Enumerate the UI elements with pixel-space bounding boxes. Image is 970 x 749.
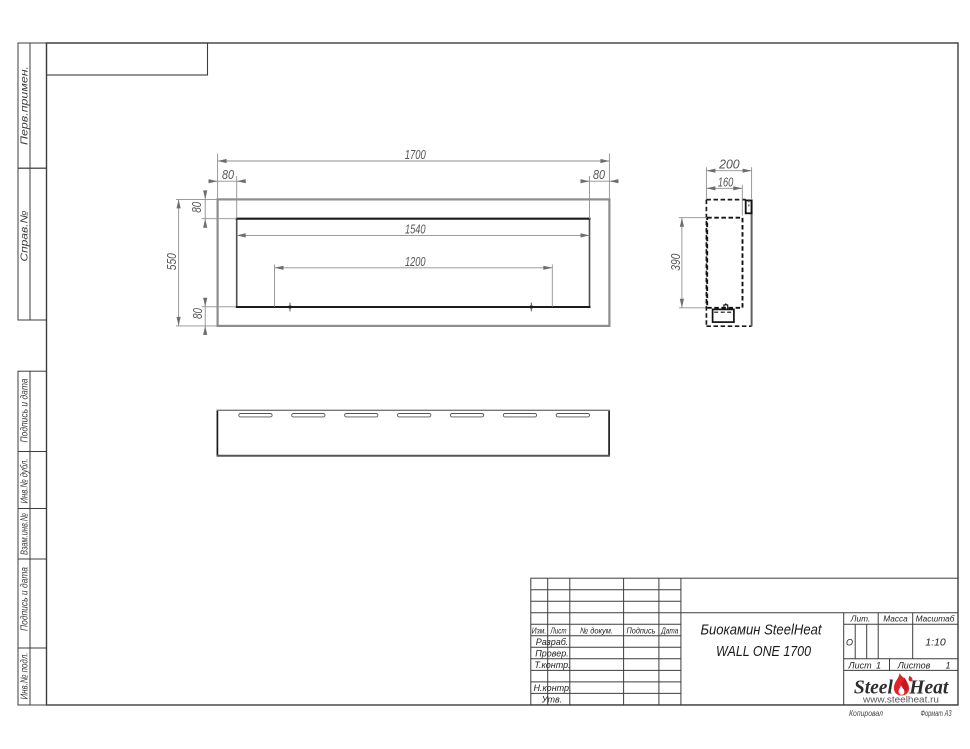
svg-text:Н.контр.: Н.контр.	[533, 683, 571, 693]
svg-text:Масса: Масса	[883, 614, 908, 624]
svg-text:390: 390	[669, 254, 683, 271]
svg-text:Лист: Лист	[550, 626, 567, 636]
svg-text:WALL ONE 1700: WALL ONE 1700	[716, 643, 812, 660]
svg-text:Листов: Листов	[897, 660, 931, 670]
svg-text:О: О	[846, 638, 853, 648]
svg-text:Масштаб: Масштаб	[916, 614, 955, 624]
svg-text:1540: 1540	[405, 222, 426, 236]
svg-text:Утв.: Утв.	[541, 694, 562, 704]
svg-text:Формат А3: Формат А3	[921, 709, 952, 718]
svg-text:1:10: 1:10	[925, 637, 946, 649]
svg-text:Лит.: Лит.	[850, 614, 870, 624]
svg-text:160: 160	[718, 175, 734, 189]
svg-text:Дата: Дата	[661, 626, 679, 636]
svg-text:Справ.№: Справ.№	[19, 211, 31, 262]
svg-text:80: 80	[222, 168, 234, 182]
svg-text:Подпись и дата: Подпись и дата	[19, 567, 31, 631]
svg-text:Инв.№ подл.: Инв.№ подл.	[19, 653, 31, 700]
svg-text:Т.контр.: Т.контр.	[534, 660, 570, 670]
svg-text:1: 1	[945, 660, 950, 670]
svg-text:1200: 1200	[405, 255, 426, 269]
svg-text:200: 200	[718, 158, 740, 172]
svg-text:Взам.инв.№: Взам.инв.№	[19, 513, 31, 555]
svg-text:1: 1	[876, 660, 881, 670]
svg-text:№ докум.: № докум.	[580, 626, 613, 636]
svg-text:Инв.№ дубл.: Инв.№ дубл.	[19, 459, 31, 504]
svg-text:Изм.: Изм.	[532, 626, 547, 636]
svg-text:www.steelheat.ru: www.steelheat.ru	[862, 695, 939, 705]
svg-text:1700: 1700	[405, 148, 426, 162]
svg-text:80: 80	[190, 202, 204, 213]
svg-text:Подпись: Подпись	[627, 626, 656, 636]
svg-text:Перв.примен.: Перв.примен.	[19, 66, 31, 145]
svg-text:550: 550	[165, 253, 179, 270]
svg-text:80: 80	[593, 168, 605, 182]
svg-text:Копировал: Копировал	[849, 709, 883, 718]
svg-text:Провер.: Провер.	[535, 648, 569, 658]
svg-text:Разраб.: Разраб.	[536, 637, 569, 647]
svg-text:80: 80	[191, 308, 205, 319]
svg-text:Биокамин SteelHeat: Биокамин SteelHeat	[701, 622, 823, 639]
svg-text:Лист: Лист	[847, 660, 872, 670]
svg-text:Подпись и дата: Подпись и дата	[19, 378, 31, 442]
